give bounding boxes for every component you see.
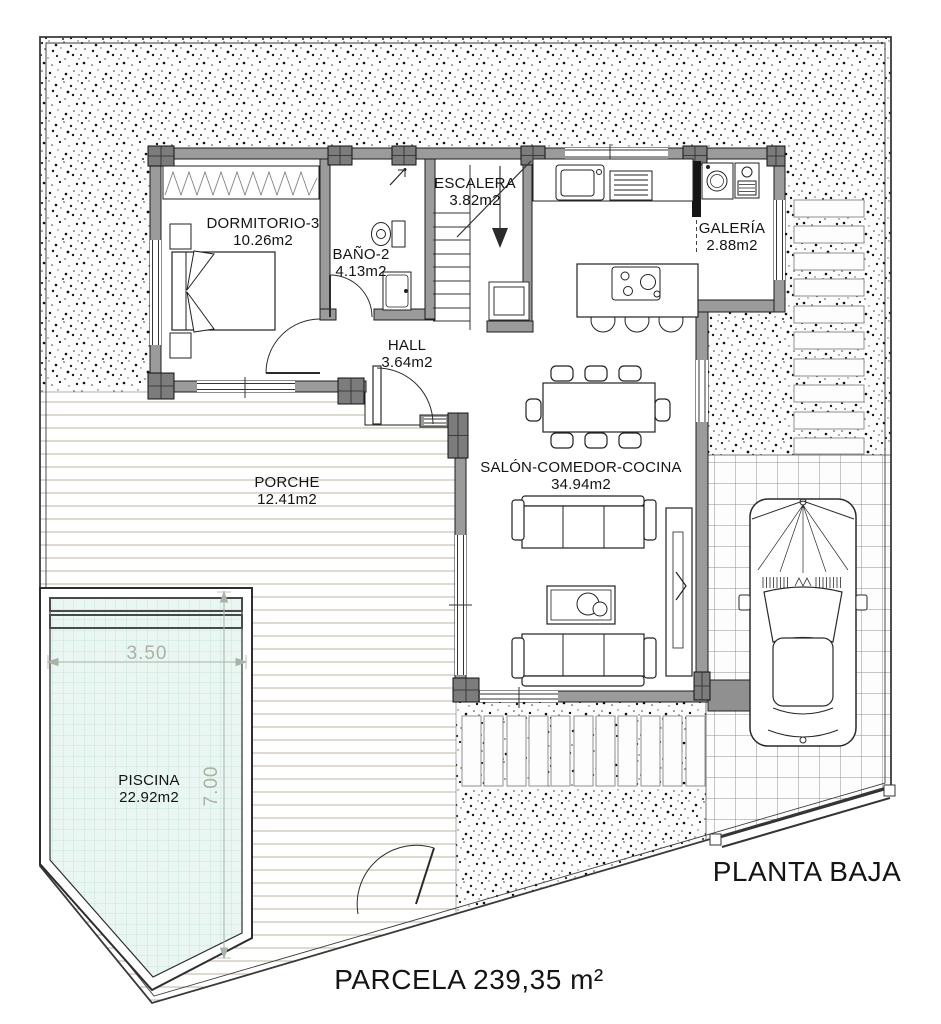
plan-title: PLANTA BAJA	[713, 856, 902, 888]
room-label-escalera: ESCALERA 3.82m2	[434, 176, 516, 210]
floor-plan-canvas: DORMITORIO-3 10.26m2 BAÑO-2 4.13m2 ESCAL…	[0, 0, 941, 1024]
room-name: PISCINA	[118, 773, 179, 790]
kitchen-counter	[533, 159, 693, 201]
coffee-table-icon	[547, 586, 615, 624]
room-area: 10.26m2	[207, 233, 320, 250]
tv-unit-icon	[666, 508, 692, 676]
parcel-area-label: PARCELA 239,35 m²	[334, 964, 603, 996]
room-label-bano: BAÑO-2 4.13m2	[332, 247, 389, 281]
sofa-bottom-icon	[512, 634, 656, 686]
washing-machine-icon	[702, 163, 733, 199]
room-name: ESCALERA	[434, 176, 516, 193]
car-icon	[739, 499, 867, 746]
sink-icon	[556, 165, 604, 200]
room-name: GALERÍA	[699, 221, 765, 238]
room-area: 22.92m2	[118, 790, 179, 807]
room-name: HALL	[381, 338, 432, 355]
room-label-piscina: PISCINA 22.92m2	[118, 773, 179, 807]
room-name: SALÓN-COMEDOR-COCINA	[480, 460, 682, 477]
pool-width-dimension: 3.50	[127, 643, 168, 665]
room-area: 3.64m2	[381, 355, 432, 372]
kitchen-island	[577, 264, 698, 332]
room-label-hall: HALL 3.64m2	[381, 338, 432, 372]
room-label-galeria: GALERÍA 2.88m2	[699, 221, 765, 255]
room-area: 2.88m2	[699, 238, 765, 255]
stepping-stones-bottom	[462, 716, 705, 786]
pool-length-dimension: 7.00	[201, 766, 223, 807]
room-label-salon: SALÓN-COMEDOR-COCINA 34.94m2	[480, 460, 682, 494]
room-area: 34.94m2	[480, 477, 682, 494]
dryer-icon	[735, 163, 759, 198]
room-area: 4.13m2	[332, 264, 389, 281]
room-area: 3.82m2	[434, 193, 516, 210]
room-name: BAÑO-2	[332, 247, 389, 264]
room-name: PORCHE	[254, 475, 319, 492]
room-name: DORMITORIO-3	[207, 216, 320, 233]
room-label-dormitorio: DORMITORIO-3 10.26m2	[207, 216, 320, 250]
room-area: 12.41m2	[254, 492, 319, 509]
drainer-icon	[610, 171, 652, 200]
wardrobe-icon	[163, 166, 319, 199]
room-label-porche: PORCHE 12.41m2	[254, 475, 319, 509]
sofa-top-icon	[512, 496, 656, 548]
